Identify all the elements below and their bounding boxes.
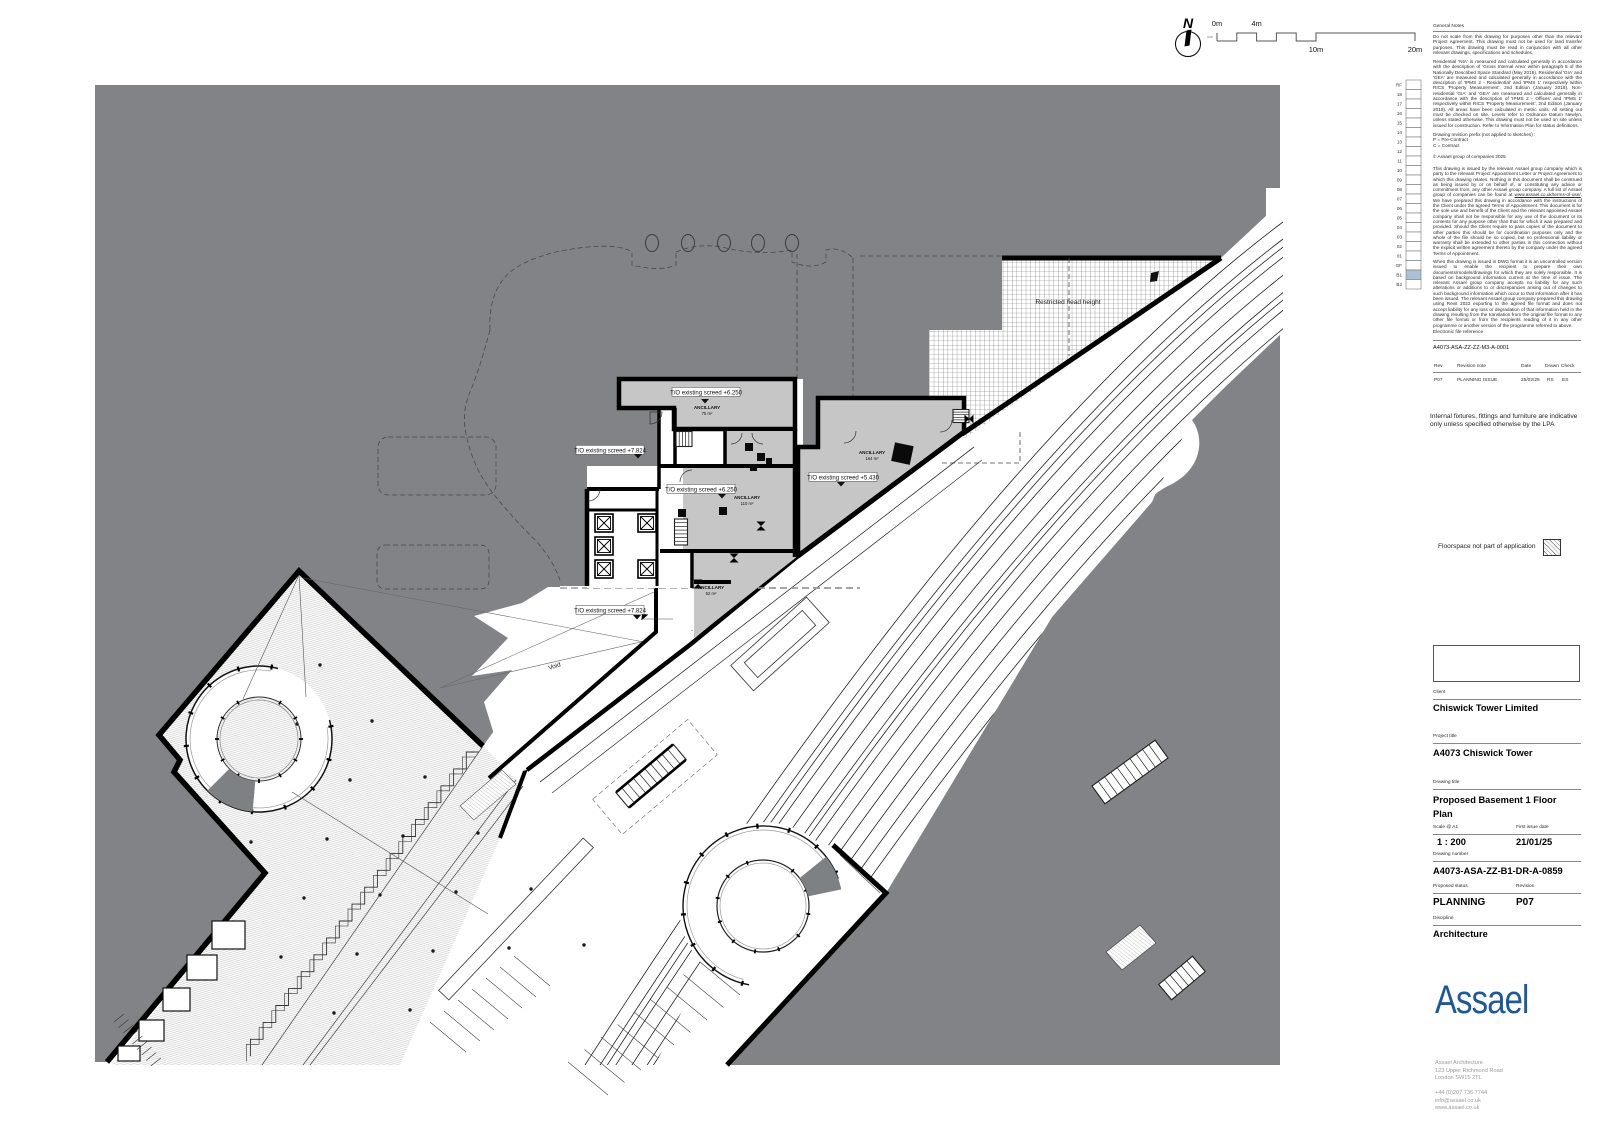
svg-text:10m: 10m xyxy=(1309,45,1324,54)
svg-text:Restricted head height: Restricted head height xyxy=(1035,299,1100,306)
svg-text:52 m²: 52 m² xyxy=(706,591,717,596)
svg-text:T/O existing screed +6.250: T/O existing screed +6.250 xyxy=(665,488,738,494)
svg-text:16: 16 xyxy=(1397,111,1403,116)
svg-text:05: 05 xyxy=(1397,216,1403,221)
svg-text:T/O existing screed +5.430: T/O existing screed +5.430 xyxy=(807,476,880,482)
svg-text:11: 11 xyxy=(1397,159,1402,164)
svg-text:07: 07 xyxy=(1397,197,1403,202)
svg-text:B2: B2 xyxy=(1396,282,1402,287)
svg-text:14: 14 xyxy=(1397,130,1403,135)
svg-text:20m: 20m xyxy=(1408,45,1423,54)
svg-text:15: 15 xyxy=(1397,121,1403,126)
svg-text:ANCILLARY: ANCILLARY xyxy=(694,405,720,410)
svg-text:08: 08 xyxy=(1397,187,1403,192)
svg-text:10: 10 xyxy=(1397,168,1403,173)
svg-text:GF: GF xyxy=(1396,263,1403,268)
svg-text:164 m²: 164 m² xyxy=(865,456,879,461)
svg-text:12: 12 xyxy=(1397,149,1403,154)
svg-text:B1: B1 xyxy=(1396,273,1402,278)
svg-text:T/O existing screed +6.250: T/O existing screed +6.250 xyxy=(670,391,743,397)
svg-text:06: 06 xyxy=(1397,206,1403,211)
svg-text:01: 01 xyxy=(1397,254,1403,259)
svg-text:02: 02 xyxy=(1397,244,1403,249)
svg-text:T/O existing screed +7.824: T/O existing screed +7.824 xyxy=(574,449,647,455)
svg-text:03: 03 xyxy=(1397,235,1403,240)
svg-text:ANCILLARY: ANCILLARY xyxy=(734,495,760,500)
svg-text:04: 04 xyxy=(1397,225,1403,230)
svg-text:ANCILLARY: ANCILLARY xyxy=(698,585,724,590)
svg-text:ANCILLARY: ANCILLARY xyxy=(859,450,885,455)
svg-text:0m: 0m xyxy=(1212,19,1222,28)
svg-text:110 m²: 110 m² xyxy=(741,501,754,506)
svg-text:4m: 4m xyxy=(1251,19,1261,28)
svg-text:09: 09 xyxy=(1397,178,1403,183)
svg-text:N: N xyxy=(1183,15,1194,31)
svg-text:17: 17 xyxy=(1397,102,1403,107)
svg-text:T/O existing screed +7.824: T/O existing screed +7.824 xyxy=(574,609,647,615)
svg-text:13: 13 xyxy=(1397,140,1403,145)
svg-text:18: 18 xyxy=(1397,92,1403,97)
svg-text:75 m²: 75 m² xyxy=(702,411,713,416)
svg-text:RF: RF xyxy=(1396,83,1402,88)
